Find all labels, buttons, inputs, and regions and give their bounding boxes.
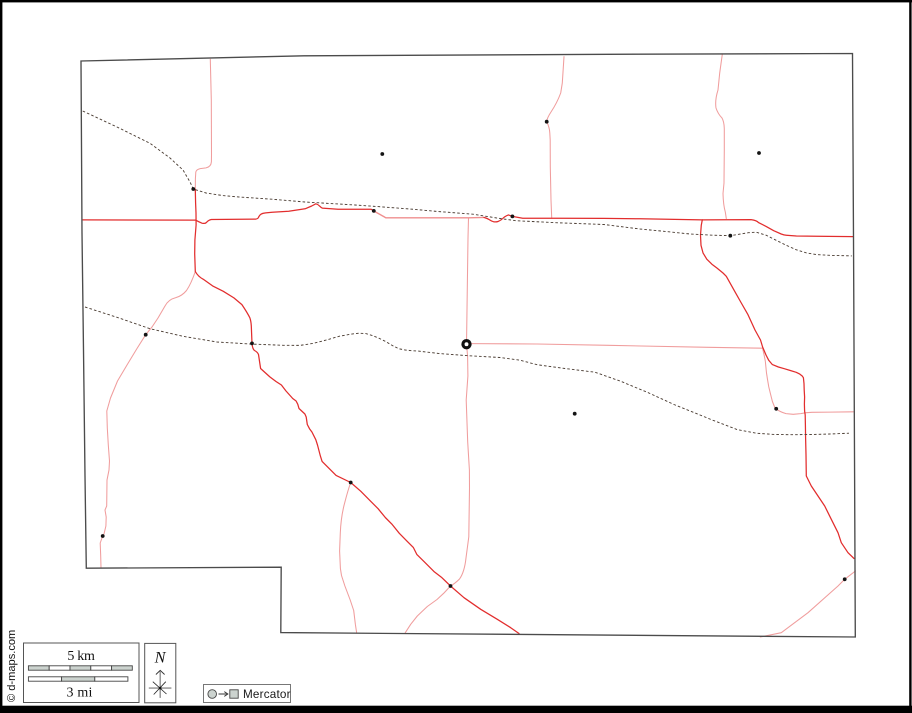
- svg-text:3 mi: 3 mi: [66, 686, 92, 701]
- svg-text:5 km: 5 km: [67, 649, 95, 664]
- svg-text:Mercator: Mercator: [243, 688, 291, 701]
- svg-text:N: N: [154, 648, 167, 667]
- svg-text:© d-maps.com: © d-maps.com: [6, 630, 18, 702]
